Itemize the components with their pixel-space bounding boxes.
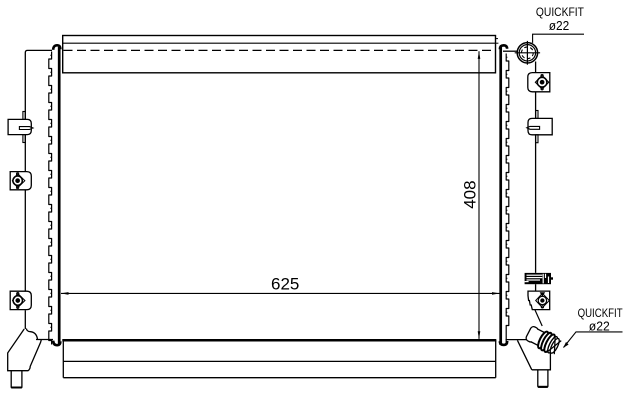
svg-text:QUICKFIT: QUICKFIT (578, 307, 623, 320)
svg-text:QUICKFIT: QUICKFIT (536, 6, 584, 19)
svg-text:625: 625 (271, 275, 299, 294)
svg-text:408: 408 (461, 180, 480, 208)
svg-text:ø22: ø22 (549, 19, 570, 33)
